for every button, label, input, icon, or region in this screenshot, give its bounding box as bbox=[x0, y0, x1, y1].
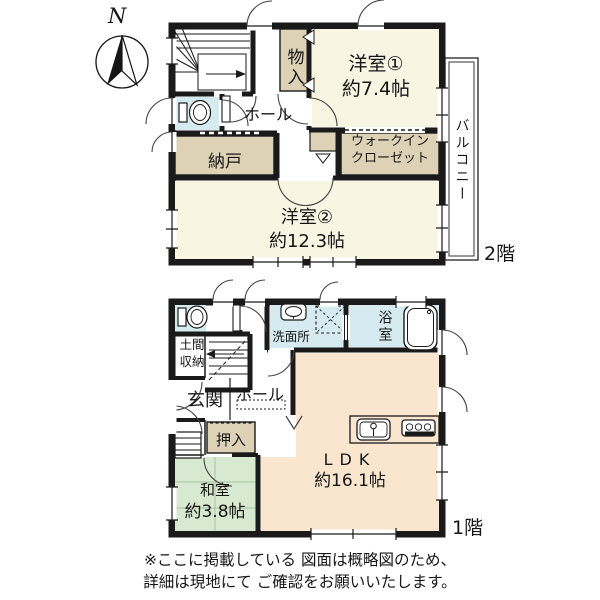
label-monoire: 物入 bbox=[279, 38, 309, 98]
label-bedroom2-size: 約12.3帖 bbox=[174, 230, 440, 254]
shoe-cabinet-icon bbox=[175, 432, 201, 458]
label-nando: 納戸 bbox=[174, 147, 276, 172]
footnote-line2: 詳細は現地にて ご確認をお願いいたします。 bbox=[0, 571, 600, 593]
label-hall-2f: ホール bbox=[244, 101, 292, 125]
label-genkan: 玄関 bbox=[178, 386, 232, 412]
label-doma-line1: 土間 bbox=[175, 337, 209, 354]
sink-icon bbox=[281, 304, 306, 320]
compass-n-label: N bbox=[108, 4, 126, 28]
toilet-2f-icon bbox=[179, 101, 211, 125]
label-floor2: 2階 bbox=[484, 239, 515, 266]
footnote-line1: ※ここに掲載している 図面は概略図のため、 bbox=[0, 549, 600, 571]
label-bedroom1-size: 約7.4帖 bbox=[312, 77, 440, 102]
label-hall-1f: ホール bbox=[230, 381, 290, 405]
label-bedroom2-name: 洋室② bbox=[174, 206, 440, 230]
hall-closet bbox=[310, 131, 338, 151]
label-washroom: 洗面所 bbox=[266, 326, 316, 345]
bath-door-gap bbox=[342, 315, 350, 340]
label-wic-line1: ウォークイン bbox=[342, 133, 438, 150]
label-bathroom: 浴室 bbox=[374, 305, 395, 349]
kitchen-counter bbox=[350, 416, 439, 443]
label-oshiire: 押入 bbox=[208, 429, 254, 450]
floorplan-canvas: N 物入 洋室① 約7.4帖 ホール 納戸 ウォークイン クローゼット 洋室② … bbox=[0, 0, 600, 600]
label-balcony: バルコニー bbox=[448, 92, 475, 228]
toilet-1f-icon bbox=[178, 306, 207, 328]
label-floor1: 1階 bbox=[452, 513, 483, 540]
north-arrow-icon bbox=[96, 35, 148, 88]
label-doma-line2: 収納 bbox=[175, 354, 209, 371]
bathtub-icon bbox=[404, 305, 437, 350]
label-ldk-name: LDK bbox=[282, 449, 418, 470]
label-ldk-size: 約16.1帖 bbox=[282, 470, 418, 492]
label-washitsu-name: 和室 bbox=[172, 481, 258, 501]
label-bedroom1-name: 洋室① bbox=[312, 52, 440, 77]
stove-icon bbox=[402, 420, 435, 436]
label-wic-line2: クローゼット bbox=[342, 150, 438, 167]
kitchen-sink-icon bbox=[357, 419, 390, 440]
label-washitsu-size: 約3.8帖 bbox=[172, 501, 258, 523]
footnote: ※ここに掲載している 図面は概略図のため、 詳細は現地にて ご確認をお願いいたし… bbox=[0, 549, 600, 594]
